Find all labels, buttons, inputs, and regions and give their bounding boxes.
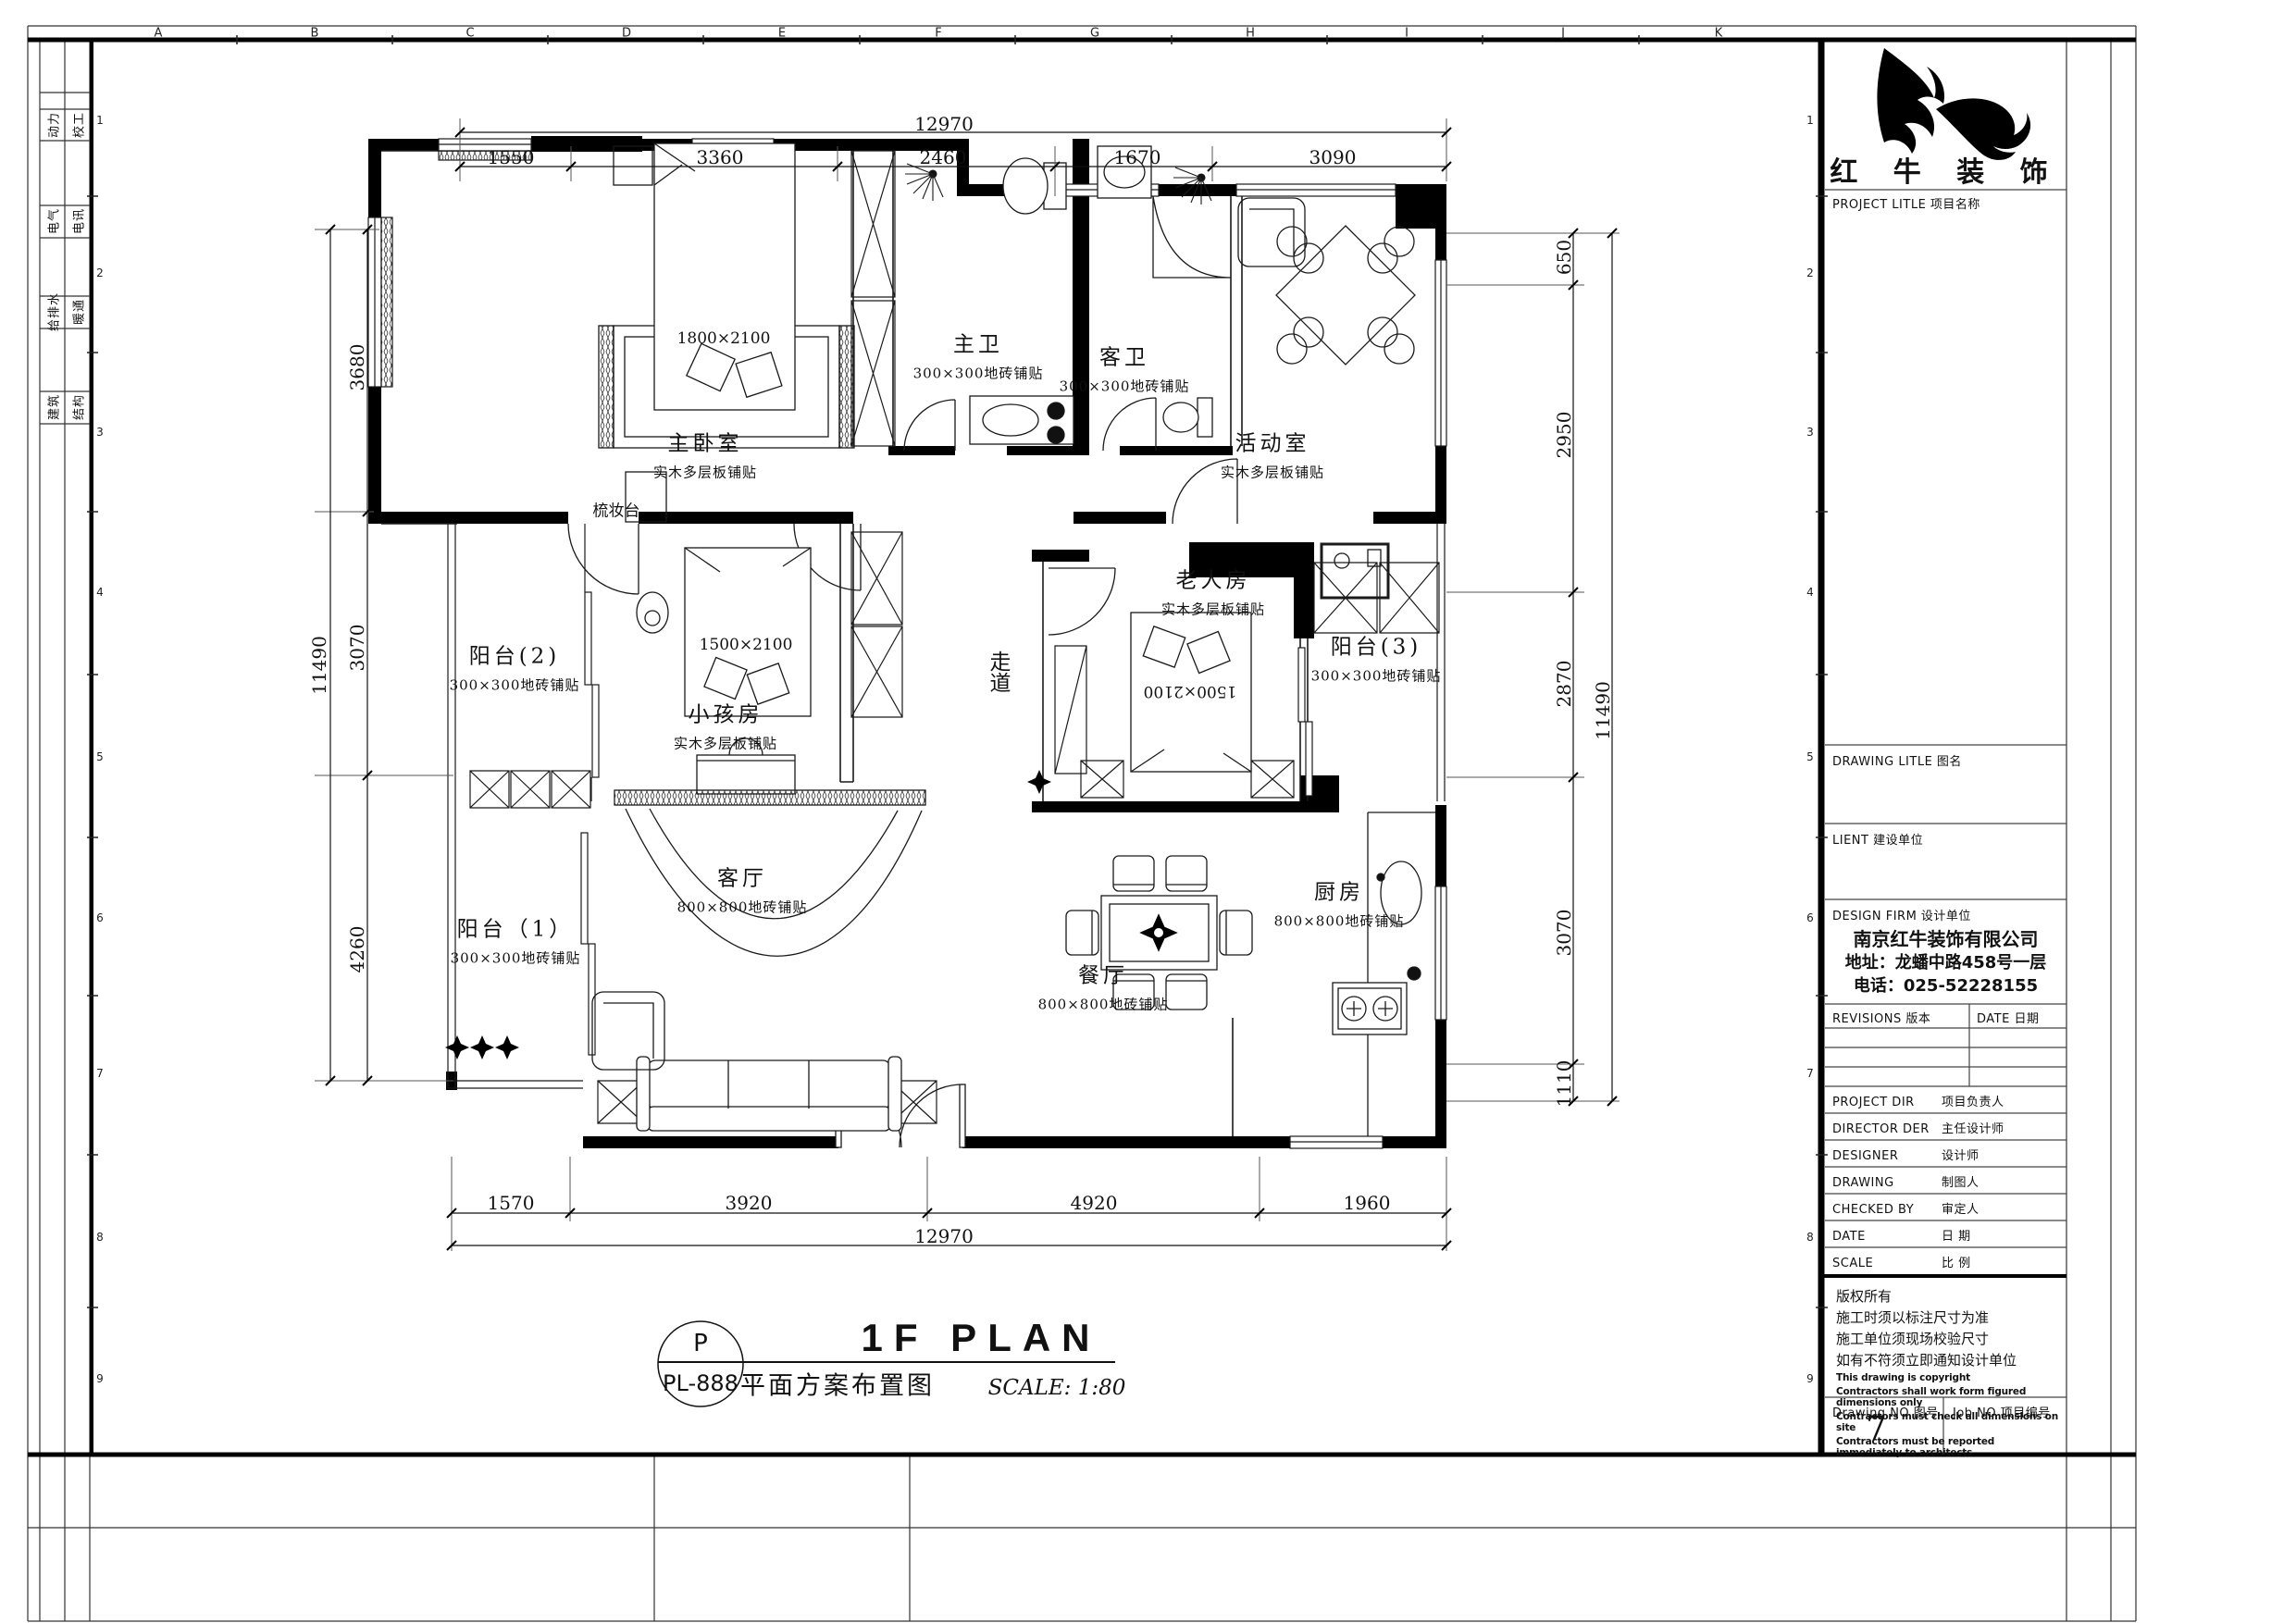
room-label: 餐厅800×800地砖铺贴 bbox=[1038, 958, 1169, 1014]
furniture-label: 1500×2100 bbox=[1144, 682, 1237, 700]
page-title: 1F PLAN bbox=[861, 1316, 1100, 1360]
grid-number-left: 2 bbox=[96, 266, 104, 279]
room-finish: 实木多层板铺贴 bbox=[653, 463, 757, 482]
room-label: 老人房实木多层板铺贴 bbox=[1161, 563, 1265, 619]
drawing-no-value: 7 bbox=[1866, 1410, 1887, 1448]
living-room-furniture bbox=[592, 790, 925, 1131]
firm-phone: 电话：025-52228155 bbox=[1825, 973, 2066, 997]
copyright-line-en: This drawing is copyright bbox=[1836, 1372, 2063, 1383]
room-name: 餐厅 bbox=[1038, 958, 1169, 989]
staff-row: DIRECTOR DER主任设计师 bbox=[1832, 1119, 2064, 1136]
grid-letter: J bbox=[1561, 27, 1565, 41]
staff-role-cn: 比 例 bbox=[1942, 1257, 1971, 1270]
discipline-b: 校工 bbox=[69, 112, 87, 138]
room-finish: 300×300地砖铺贴 bbox=[1060, 377, 1190, 396]
dim-bottom-total: 12970 bbox=[914, 1225, 974, 1247]
staff-role-cn: 日 期 bbox=[1942, 1230, 1971, 1244]
discipline-b: 暖通 bbox=[69, 299, 87, 325]
room-name: 阳台(3) bbox=[1311, 629, 1442, 661]
design-firm-label: DESIGN FIRM 设计单位 bbox=[1832, 906, 1971, 923]
furniture-label: 1800×2100 bbox=[677, 329, 771, 348]
grid-letter: H bbox=[1246, 27, 1255, 41]
grid-letter: B bbox=[311, 27, 319, 41]
grid-number-right: 7 bbox=[1806, 1067, 1814, 1080]
grid-letter: I bbox=[1405, 27, 1409, 41]
discipline-a: 动力 bbox=[44, 112, 62, 138]
staff-role-en: PROJECT DIR bbox=[1832, 1096, 1942, 1109]
grid-number-left: 9 bbox=[96, 1372, 104, 1385]
grid-number-left: 5 bbox=[96, 750, 104, 763]
room-finish: 800×800地砖铺贴 bbox=[1274, 911, 1405, 931]
drawing-sheet: 红 牛 装 饰 PROJECT LITLE 项目名称 DRAWING LITLE… bbox=[0, 0, 2296, 1623]
staff-role-en: DRAWING bbox=[1832, 1176, 1942, 1190]
copyright-line-cn: 施工单位须现场校验尺寸 bbox=[1836, 1329, 2063, 1348]
room-finish: 300×300地砖铺贴 bbox=[450, 675, 580, 695]
grid-number-right: 6 bbox=[1806, 911, 1814, 924]
grid-letter: F bbox=[935, 27, 941, 41]
grid-letter: E bbox=[778, 27, 786, 41]
staff-role-cn: 主任设计师 bbox=[1942, 1122, 2004, 1136]
room-name: 活动室 bbox=[1221, 426, 1324, 457]
room-label: 阳台(2)300×300地砖铺贴 bbox=[450, 638, 580, 695]
room-name: 厨房 bbox=[1274, 874, 1405, 906]
revisions-date-label: DATE 日期 bbox=[1977, 1009, 2039, 1026]
dim-right: 1110 bbox=[1553, 1060, 1575, 1108]
staff-row: DATE日 期 bbox=[1832, 1226, 2064, 1244]
discipline-b: 结构 bbox=[69, 394, 87, 420]
dim-top: 3360 bbox=[697, 146, 744, 168]
dim-left-total: 11490 bbox=[308, 636, 330, 695]
furniture-label: 1500×2100 bbox=[700, 636, 793, 654]
grid-number-right: 5 bbox=[1806, 750, 1814, 763]
copyright-line-cn: 如有不符须立即通知设计单位 bbox=[1836, 1350, 2063, 1369]
grid-number-right: 4 bbox=[1806, 586, 1814, 599]
dim-right-total: 11490 bbox=[1592, 681, 1614, 740]
grid-number-left: 7 bbox=[96, 1067, 104, 1080]
project-title-label: PROJECT LITLE 项目名称 bbox=[1832, 194, 1980, 212]
room-name: 小孩房 bbox=[674, 697, 777, 728]
tag-letter: P bbox=[693, 1330, 708, 1357]
grid-number-left: 6 bbox=[96, 911, 104, 924]
revisions-label: REVISIONS 版本 bbox=[1832, 1009, 1930, 1026]
room-name: 走道 bbox=[982, 650, 1013, 693]
room-label: 阳台（1）300×300地砖铺贴 bbox=[451, 911, 581, 968]
drawing-title-label: DRAWING LITLE 图名 bbox=[1832, 751, 1962, 769]
grid-number-right: 2 bbox=[1806, 266, 1814, 279]
client-label: LIENT 建设单位 bbox=[1832, 830, 1923, 848]
logo-text: 红 牛 装 饰 bbox=[1830, 149, 2060, 190]
dim-top: 3090 bbox=[1309, 146, 1357, 168]
room-name: 阳台(2) bbox=[450, 638, 580, 670]
staff-role-cn: 制图人 bbox=[1942, 1176, 1980, 1190]
grid-letter: G bbox=[1090, 27, 1099, 41]
grid-letter: K bbox=[1715, 27, 1723, 41]
dim-right: 3070 bbox=[1553, 910, 1575, 957]
room-label: 主卫300×300地砖铺贴 bbox=[913, 327, 1044, 383]
scale-note: SCALE: 1:80 bbox=[988, 1376, 1126, 1400]
staff-row: DESIGNER设计师 bbox=[1832, 1146, 2064, 1163]
discipline-b: 电讯 bbox=[69, 208, 87, 234]
grid-number-right: 3 bbox=[1806, 426, 1814, 439]
grid-number-right: 9 bbox=[1806, 1372, 1814, 1385]
room-label: 客卫300×300地砖铺贴 bbox=[1060, 340, 1190, 396]
room-name: 老人房 bbox=[1161, 563, 1265, 594]
room-finish: 300×300地砖铺贴 bbox=[451, 948, 581, 968]
staff-role-cn: 项目负责人 bbox=[1942, 1096, 2004, 1109]
dim-top: 1670 bbox=[1114, 146, 1161, 168]
grid-letter: A bbox=[155, 27, 163, 41]
staff-role-en: DATE bbox=[1832, 1230, 1942, 1244]
dim-top: 1550 bbox=[488, 146, 535, 168]
staff-row: CHECKED BY审定人 bbox=[1832, 1199, 2064, 1217]
staff-role-cn: 设计师 bbox=[1942, 1149, 1980, 1163]
logo-box: 红 牛 装 饰 bbox=[1825, 43, 2066, 191]
room-name: 主卧室 bbox=[653, 426, 757, 457]
staff-role-en: DESIGNER bbox=[1832, 1149, 1942, 1163]
room-finish: 300×300地砖铺贴 bbox=[1311, 666, 1442, 686]
grid-letter: C bbox=[465, 27, 474, 41]
room-label: 小孩房实木多层板铺贴 bbox=[674, 697, 777, 753]
discipline-a: 给排水 bbox=[44, 292, 62, 331]
activity-room-furniture bbox=[1238, 198, 1415, 365]
room-label: 客厅800×800地砖铺贴 bbox=[677, 861, 808, 917]
room-name: 客厅 bbox=[677, 861, 808, 892]
staff-row: SCALE比 例 bbox=[1832, 1253, 2064, 1270]
dim-right: 2950 bbox=[1553, 412, 1575, 459]
doors bbox=[568, 398, 1237, 1147]
tag-number: PL-888 bbox=[663, 1370, 738, 1396]
dim-right: 650 bbox=[1553, 240, 1575, 275]
dim-bottom: 4920 bbox=[1071, 1192, 1118, 1214]
discipline-a: 电气 bbox=[44, 208, 62, 234]
staff-row: DRAWING制图人 bbox=[1832, 1172, 2064, 1190]
staff-role-cn: 审定人 bbox=[1942, 1203, 1980, 1217]
grid-number-right: 1 bbox=[1806, 114, 1814, 127]
firm-name: 南京红牛装饰有限公司 bbox=[1825, 924, 2066, 951]
dim-bottom: 3920 bbox=[726, 1192, 773, 1214]
room-finish: 实木多层板铺贴 bbox=[1221, 463, 1324, 482]
room-label: 阳台(3)300×300地砖铺贴 bbox=[1311, 629, 1442, 686]
grid-number-left: 8 bbox=[96, 1231, 104, 1244]
firm-address: 地址：龙蟠中路458号一层 bbox=[1825, 949, 2066, 973]
dim-left: 3680 bbox=[346, 344, 368, 391]
room-finish: 实木多层板铺贴 bbox=[1161, 600, 1265, 619]
furniture-label: 梳妆台 bbox=[593, 498, 640, 521]
grid-number-left: 3 bbox=[96, 426, 104, 439]
copyright-line-cn: 施工时须以标注尺寸为准 bbox=[1836, 1307, 2063, 1327]
dim-bottom: 1570 bbox=[488, 1192, 535, 1214]
grid-number-left: 1 bbox=[96, 114, 104, 127]
dim-left: 3070 bbox=[346, 625, 368, 672]
page-subtitle: 平面方案布置图 bbox=[740, 1366, 935, 1402]
grid-number-left: 4 bbox=[96, 586, 104, 599]
room-label: 走道 bbox=[982, 650, 1013, 693]
staff-role-en: SCALE bbox=[1832, 1257, 1942, 1270]
dim-bottom: 1960 bbox=[1344, 1192, 1391, 1214]
staff-role-en: CHECKED BY bbox=[1832, 1203, 1942, 1217]
room-finish: 300×300地砖铺贴 bbox=[913, 364, 1044, 383]
room-name: 阳台（1） bbox=[451, 911, 581, 943]
dim-top-total: 12970 bbox=[914, 113, 974, 135]
room-name: 客卫 bbox=[1060, 340, 1190, 371]
dim-right: 2870 bbox=[1553, 661, 1575, 708]
staff-role-en: DIRECTOR DER bbox=[1832, 1122, 1942, 1136]
wardrobes bbox=[470, 151, 1439, 1123]
job-no-label: Job NO 项目编号 bbox=[1953, 1403, 2051, 1420]
room-finish: 800×800地砖铺贴 bbox=[677, 898, 808, 917]
room-finish: 800×800地砖铺贴 bbox=[1038, 995, 1169, 1014]
grid-letter: D bbox=[622, 27, 631, 41]
room-label: 主卧室实木多层板铺贴 bbox=[653, 426, 757, 482]
staff-row: PROJECT DIR项目负责人 bbox=[1832, 1092, 2064, 1109]
room-label: 厨房800×800地砖铺贴 bbox=[1274, 874, 1405, 931]
room-name: 主卫 bbox=[913, 327, 1044, 358]
dim-top: 2460 bbox=[920, 146, 967, 168]
grid-number-right: 8 bbox=[1806, 1231, 1814, 1244]
copyright-line-cn: 版权所有 bbox=[1836, 1286, 2063, 1306]
room-label: 活动室实木多层板铺贴 bbox=[1221, 426, 1324, 482]
discipline-a: 建筑 bbox=[44, 394, 62, 420]
dim-left: 4260 bbox=[346, 926, 368, 973]
room-finish: 实木多层板铺贴 bbox=[674, 734, 777, 753]
